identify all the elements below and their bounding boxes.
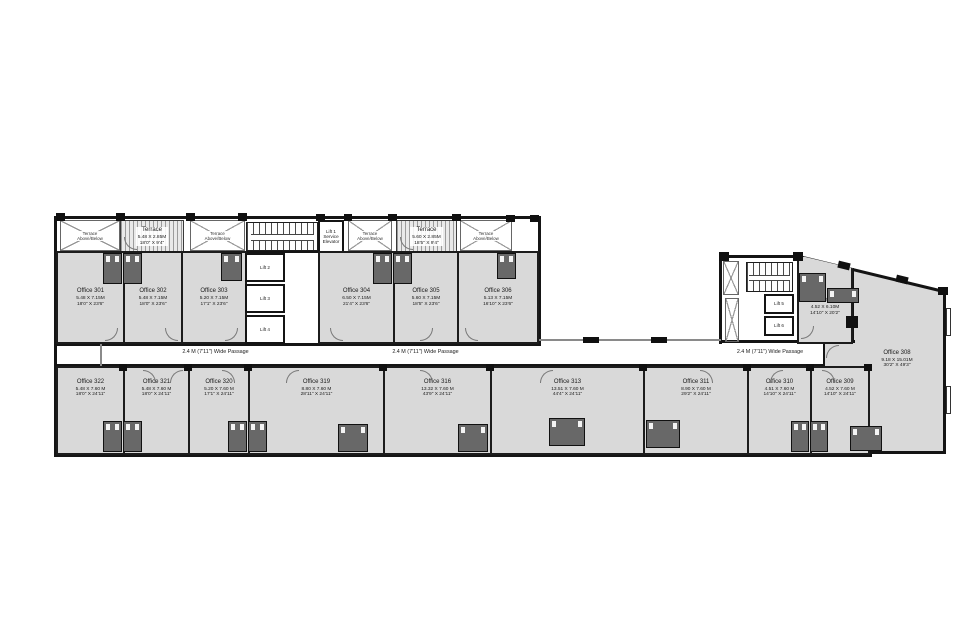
terrace-2-label: Terrace 5.60 X 2.85M 18'5" X 9'4"	[410, 227, 443, 246]
column	[530, 215, 539, 222]
toilet	[646, 420, 680, 448]
lift-lobby	[287, 253, 318, 343]
room-label: Office 305 5.60 X 7.15M 18'5" X 23'6"	[412, 288, 441, 307]
room-office-308-label: Office 308 9.18 X 15.01M 30'2" X 49'3"	[862, 350, 932, 369]
toilet	[123, 253, 142, 284]
passage-edge	[539, 339, 721, 341]
column	[119, 364, 127, 371]
passage-label: 2.4 M (7'11") Wide Passage	[714, 349, 826, 355]
shaft-2	[725, 298, 739, 342]
room-label: Office 304 6.50 X 7.15M 21'4" X 23'6"	[342, 288, 371, 307]
toilet	[393, 253, 412, 284]
room-label: Office 301 5.48 X 7.15M 18'0" X 23'6"	[76, 288, 105, 307]
right-wing-top-wall	[719, 255, 803, 258]
column	[238, 213, 247, 221]
column	[116, 213, 125, 221]
office-308-bottom-wall	[866, 451, 946, 454]
staircase-main	[246, 222, 318, 251]
column	[56, 213, 65, 221]
staircase-right	[746, 262, 793, 292]
toilet	[123, 421, 142, 452]
toilet	[338, 424, 368, 452]
right-wing-left-wall	[719, 255, 722, 344]
toilet	[458, 424, 488, 452]
column	[938, 287, 948, 295]
terrace-label: Terrace Above/Below	[75, 231, 105, 241]
column	[864, 364, 872, 371]
section-line	[100, 344, 102, 366]
passage-label: 2.4 M (7'11") Wide Passage	[158, 349, 273, 355]
terrace-label: Terrace Above/Below	[471, 231, 501, 241]
room-label: Office 313 13.51 X 7.60 M 44'4" X 24'11"	[551, 379, 584, 398]
column	[452, 214, 461, 221]
toilet	[221, 253, 242, 281]
lift-2: Lift 2	[245, 253, 285, 282]
terrace-label: Terrace Above/Below	[203, 231, 233, 241]
terrace-above-below-1: Terrace Above/Below	[60, 220, 120, 251]
terrace-label: Terrace Above/Below	[355, 231, 385, 241]
toilet	[373, 253, 392, 284]
toilet	[103, 253, 122, 284]
lift-3: Lift 3	[245, 284, 285, 313]
lift-6: Lift 6	[764, 316, 794, 336]
terrace-1-label: Terrace 5.48 X 2.85M 18'0" X 9'4"	[136, 227, 169, 246]
column	[846, 316, 858, 328]
room-label: Office 303 5.20 X 7.15M 17'1" X 23'6"	[200, 288, 229, 307]
column	[344, 214, 352, 221]
lift-1-service-elevator: Lift 1 Service Elevator	[318, 220, 344, 253]
passage-label: 2.4 M (7'11") Wide Passage	[368, 349, 483, 355]
terrace-above-below-4: Terrace Above/Below	[460, 220, 512, 251]
column	[244, 364, 252, 371]
room-label: Office 319 8.80 X 7.60 M 28'11" X 24'11"	[301, 379, 333, 398]
lift-4: Lift 4	[245, 315, 285, 344]
toilet	[103, 421, 122, 452]
column	[639, 364, 647, 371]
lift-5: Lift 5	[764, 294, 794, 314]
room-label: Office 306 5.13 X 7.15M 16'10" X 23'6"	[483, 288, 513, 307]
column	[719, 252, 729, 261]
toilet	[799, 273, 826, 302]
facade-ledge	[946, 386, 951, 414]
lift-1-label: Lift 1 Service Elevator	[323, 229, 340, 245]
room-label: Office 322 5.48 X 7.60 M 18'0" X 24'11"	[76, 379, 106, 398]
toilet	[497, 253, 516, 279]
column	[379, 364, 387, 371]
column	[743, 364, 751, 371]
toilet	[810, 421, 828, 452]
toilet	[248, 421, 267, 452]
toilet	[850, 426, 882, 451]
column	[316, 214, 325, 221]
toilet	[791, 421, 809, 452]
column	[388, 214, 397, 221]
terrace-above-below-2: Terrace Above/Below	[190, 220, 245, 251]
shaft-1	[723, 261, 739, 295]
facade-ledge	[946, 308, 951, 336]
column	[583, 337, 599, 343]
column	[184, 364, 192, 371]
passage-left-wall	[54, 344, 57, 366]
column	[186, 213, 195, 221]
floor-plan: Terrace Above/Below Terrace 5.48 X 2.85M…	[0, 0, 975, 625]
toilet	[549, 418, 585, 446]
column	[793, 252, 803, 261]
terrace-above-below-3: Terrace Above/Below	[348, 220, 392, 251]
column	[651, 337, 667, 343]
toilet	[827, 288, 859, 303]
toilet	[228, 421, 247, 452]
room-label: Office 302 5.48 X 7.15M 18'0" X 23'6"	[139, 288, 168, 307]
column	[486, 364, 494, 371]
column	[506, 215, 515, 222]
column	[806, 364, 814, 371]
